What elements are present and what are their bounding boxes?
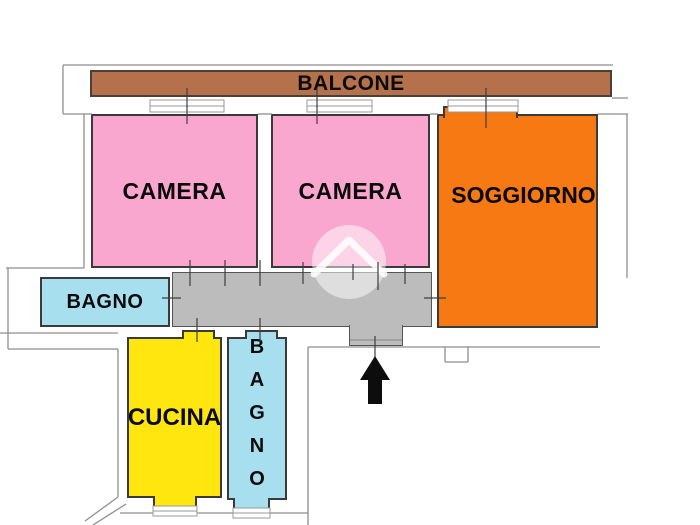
up-arrow-icon xyxy=(360,356,390,404)
room-label-camera-2: CAMERA xyxy=(299,178,403,205)
cucina-doorway xyxy=(182,330,215,339)
room-label-camera-1: CAMERA xyxy=(123,178,227,205)
cucina-window-bay xyxy=(153,496,197,509)
entrance-vestibule xyxy=(349,325,403,346)
room-label-bagno-2: BAGNO xyxy=(247,336,267,501)
room-label-bagno-1: BAGNO xyxy=(67,291,144,314)
room-label-cucina: CUCINA xyxy=(128,404,221,432)
floorplan: BALCONE CAMERA CAMERA SOGGIORNO BAGNO CU… xyxy=(0,0,700,525)
bagno-2-window-bay xyxy=(233,498,270,511)
soggiorno-window-bay xyxy=(443,106,518,118)
room-label-balcone: BALCONE xyxy=(297,72,404,96)
room-bagno-2: BAGNO xyxy=(227,337,287,500)
room-label-soggiorno: SOGGIORNO xyxy=(451,182,595,209)
room-soggiorno: SOGGIORNO xyxy=(437,114,598,328)
room-bagno-1: BAGNO xyxy=(40,277,170,327)
bagno-2-doorway xyxy=(245,330,278,339)
room-cucina: CUCINA xyxy=(127,337,222,498)
room-camera-2: CAMERA xyxy=(271,114,430,268)
room-camera-1: CAMERA xyxy=(91,114,258,268)
room-corridoio xyxy=(172,272,432,327)
room-balcone: BALCONE xyxy=(90,70,612,97)
